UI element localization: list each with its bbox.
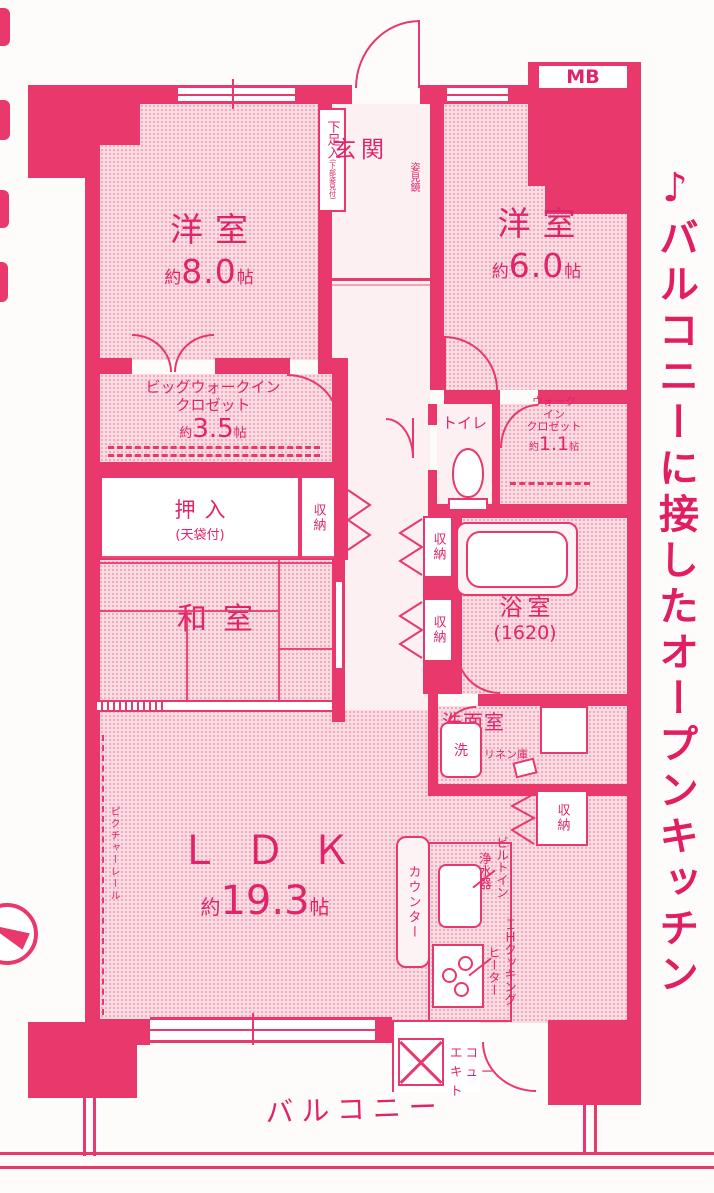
kitchen-counter: カウンター: [396, 836, 430, 968]
wall-segment: [428, 694, 438, 706]
wall-segment: [492, 404, 500, 504]
genkan-label: 玄関: [333, 130, 423, 164]
area-unit: 帖: [237, 268, 254, 288]
door-leaf: [337, 374, 339, 422]
storage-label: 収納: [553, 803, 572, 833]
window-glass-line: [447, 94, 508, 96]
ldk-size: 約19.3帖: [110, 878, 420, 924]
wall-segment: [423, 662, 453, 694]
storage-label: 収納: [429, 532, 448, 562]
bath-size: (1620): [460, 622, 590, 644]
balcony-divider: [83, 1098, 86, 1156]
area-number: 3.5: [192, 414, 233, 444]
purifier-label-2: 浄水器: [475, 852, 494, 890]
bedroom6-window: [447, 85, 508, 104]
area-number: 8.0: [181, 252, 236, 291]
wall-segment: [478, 694, 627, 706]
linen-label: リネン庫: [484, 746, 544, 762]
window-glass-line: [178, 94, 295, 96]
wall-segment: [85, 462, 348, 476]
hanger-rail-dashed: [108, 454, 320, 457]
balcony-divider: [594, 1105, 597, 1155]
storage-label: 収納: [309, 503, 328, 533]
tatami-line: [278, 560, 280, 710]
bifold-door-icon: [346, 488, 372, 552]
entrance-door-leaf: [418, 20, 420, 88]
bifold-door-icon: [398, 600, 424, 660]
picture-rail-label: ピクチャーレール: [106, 806, 121, 902]
wall-segment: [428, 706, 438, 784]
bathtub-icon: [466, 531, 568, 588]
burner-icon: [442, 968, 457, 983]
counter-label: カウンター: [404, 865, 423, 940]
ldk-balcony-window: [150, 1017, 375, 1043]
wall-segment: [318, 358, 348, 374]
bedroom8-window: [178, 85, 295, 104]
meter-box: MB: [537, 64, 629, 90]
wall-segment: [375, 1017, 392, 1043]
wall-segment: [85, 358, 132, 374]
area-number: 6.0: [509, 246, 564, 285]
bath-label: 浴室 (1620): [460, 588, 590, 644]
area-unit: 帖: [569, 442, 579, 453]
oshiire-closet: 押入 (天袋付): [100, 476, 300, 560]
approx: 約: [164, 268, 181, 288]
washing-machine-icon: 洗: [440, 722, 482, 778]
ecocute-icon: [398, 1038, 444, 1086]
wall-segment: [428, 470, 437, 504]
balcony-railing: [0, 1152, 714, 1155]
tatami-line: [278, 648, 332, 650]
hanger-rail-dashed: [108, 446, 320, 449]
wall-segment: [85, 1019, 150, 1045]
area-number: 19.3: [220, 878, 309, 924]
scan-artifact: [0, 100, 10, 140]
bedroom8-name: 洋室: [98, 212, 320, 248]
entrance-step-line: [332, 284, 430, 286]
approx: 約: [179, 426, 192, 441]
bifold-door-icon: [510, 792, 536, 846]
wall-hatch: [95, 700, 165, 712]
scan-artifact: [0, 8, 10, 46]
area-unit: 帖: [310, 895, 330, 919]
window-tick: [252, 1013, 254, 1045]
area-unit: 帖: [234, 426, 247, 441]
vanity-icon: [540, 706, 588, 754]
floor-plan: MB 下足入(下部姿見付) 玄関 姿見鏡 洋室 約8.0帖: [0, 0, 714, 1193]
mirror-label: 姿見鏡: [406, 162, 421, 192]
wall-segment: [215, 358, 290, 374]
washitsu-label: 和室: [110, 594, 320, 638]
corner-pillar: [28, 145, 85, 178]
approx: 約: [200, 895, 220, 919]
wall-segment: [508, 85, 530, 104]
balcony-divider: [583, 1105, 586, 1155]
bifold-door-icon: [398, 517, 424, 577]
storage-closet: 収納: [423, 598, 453, 662]
burner-icon: [454, 982, 469, 997]
headline: ♪バルコニーに接したオープンキッチン: [646, 165, 704, 1045]
wall-segment: [295, 85, 352, 104]
toilet-label: トイレ: [437, 412, 492, 433]
storage-label: 収納: [429, 615, 448, 645]
ih-cooktop-icon: [432, 944, 484, 1008]
entrance-door-arc: [355, 20, 420, 88]
shoe-cabinet-note: (下部姿見付): [329, 159, 336, 199]
oshiire-note: (天袋付): [175, 524, 224, 543]
hanger-rail-dashed: [510, 482, 590, 485]
approx: 約: [492, 262, 509, 282]
storage-closet: 収納: [300, 476, 336, 560]
wall-segment: [428, 404, 437, 425]
bedroom6-name: 洋室: [444, 206, 629, 242]
balcony-divider: [93, 1098, 96, 1156]
wall-segment: [332, 374, 348, 476]
wall-segment: [423, 578, 453, 598]
bedroom6-size: 約6.0帖: [444, 246, 629, 285]
oshiire-front-line: [100, 556, 336, 558]
bedroom8-size: 約8.0帖: [98, 252, 320, 291]
wall-segment: [420, 85, 447, 104]
storage-closet: 収納: [423, 516, 453, 578]
wall-right: [627, 104, 641, 1032]
burner-icon: [458, 956, 473, 971]
oshiire-front-line: [100, 562, 336, 564]
meter-box-label: MB: [566, 66, 599, 88]
oshiire-name: 押入: [166, 494, 235, 524]
scan-artifact: [0, 262, 8, 302]
washer-label: 洗: [454, 740, 468, 760]
corner-pillar: [548, 1020, 641, 1105]
ldk-name: ＬＤＫ: [110, 818, 420, 876]
wall-segment: [444, 390, 500, 404]
ldk-label: ＬＤＫ 約19.3帖: [110, 818, 420, 924]
door-leaf: [444, 336, 446, 390]
door-leaf: [412, 418, 414, 458]
window-tick: [232, 79, 234, 109]
tatami-line: [186, 610, 188, 710]
corner-pillar: [28, 85, 140, 145]
scan-artifact: [0, 190, 9, 228]
ih-label-2: ヒーター: [484, 946, 503, 996]
area-unit: 帖: [564, 262, 581, 282]
balcony-railing: [0, 1166, 714, 1169]
window-glass-line: [150, 1029, 375, 1031]
toilet-bowl-icon: [452, 448, 484, 498]
storage-closet: 収納: [536, 790, 588, 846]
balcony-label: バルコニー: [239, 1084, 470, 1132]
area-number: 1.1: [539, 433, 569, 455]
sliding-door: [334, 582, 344, 668]
wall-segment: [430, 104, 444, 390]
bedroom8-label: 洋室 約8.0帖: [98, 212, 320, 291]
entrance-step: [332, 278, 430, 281]
bath-name: 浴室: [460, 588, 590, 622]
purifier-label-1: ビルトイン: [492, 836, 511, 899]
toilet-tank-icon: [448, 498, 488, 511]
bedroom6-label: 洋室 約6.0帖: [444, 206, 629, 285]
